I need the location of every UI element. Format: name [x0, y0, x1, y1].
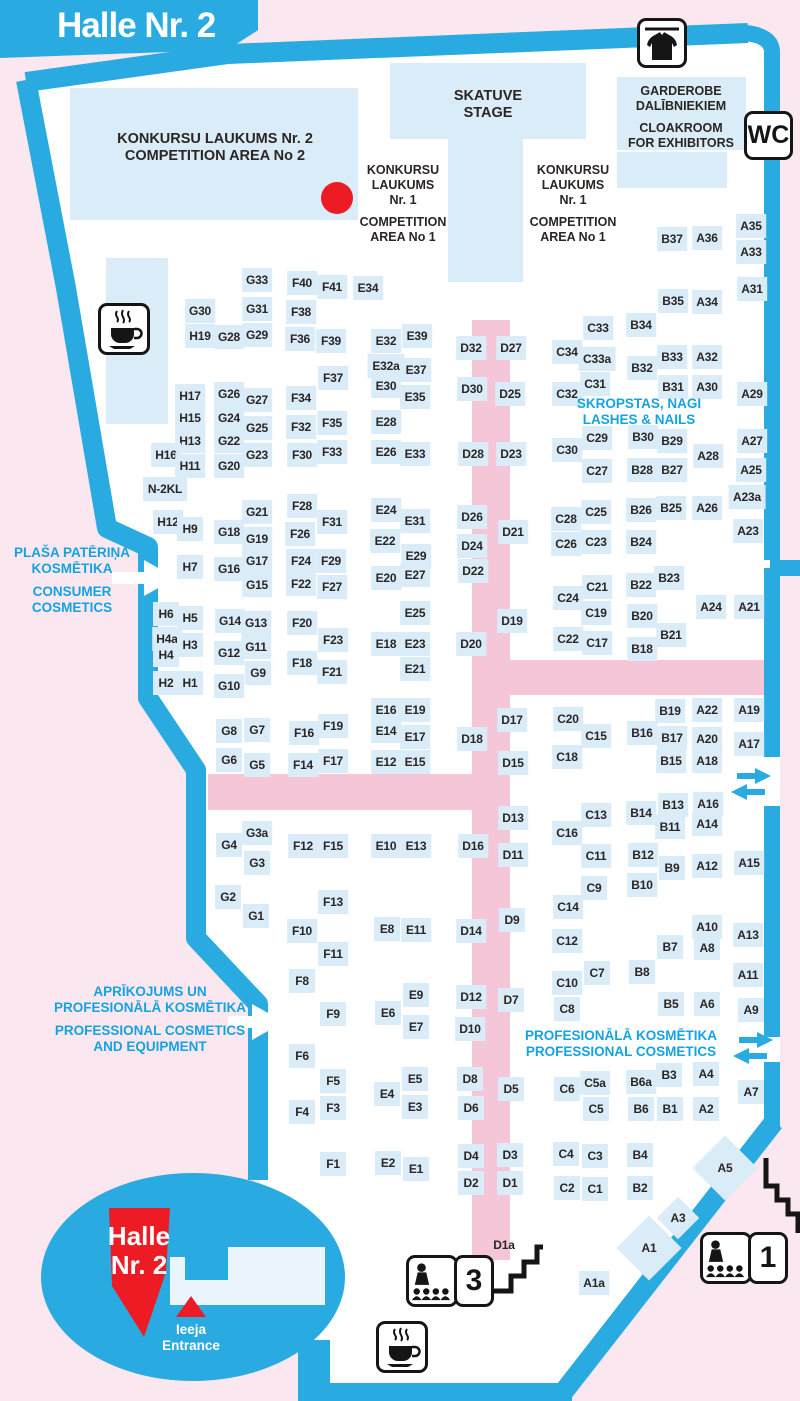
booth-label: E19 [405, 703, 426, 717]
booth-label: C30 [556, 443, 577, 457]
booth-label: E39 [407, 329, 428, 343]
booth-label: D17 [501, 713, 522, 727]
booth-b12: B12 [628, 843, 658, 867]
booth-label: E35 [405, 390, 426, 404]
garderobe-line: DALĪBNIEKIEM [628, 99, 734, 114]
booth-b4: B4 [627, 1143, 653, 1167]
booth-d10: D10 [455, 1017, 485, 1041]
booth-e12: E12 [371, 750, 401, 774]
competition-area-1-left-line: Nr. 1 [360, 193, 447, 208]
competition-area-1-left-line: AREA No 1 [360, 230, 447, 245]
booth-e5: E5 [402, 1067, 428, 1091]
booth-label: E32 [376, 334, 397, 348]
zone-consumer-cosmetics-line: CONSUMER [14, 584, 130, 600]
booth-a21: A21 [734, 595, 764, 619]
booth-label: B4 [633, 1148, 648, 1162]
zone-consumer-cosmetics-line: PLAŠA PATĒRIŅA [14, 545, 130, 561]
entrance-label: IeejaEntrance [162, 1322, 220, 1354]
booth-label: F29 [321, 554, 341, 568]
booth-label: A12 [696, 859, 717, 873]
booth-c31: C31 [580, 372, 610, 396]
booth-label: F19 [323, 719, 343, 733]
lecture-audience-icon [700, 1232, 752, 1284]
booth-label: B32 [631, 361, 652, 375]
booth-label: E28 [376, 415, 397, 429]
booth-label: G1 [248, 909, 264, 923]
booth-label: C33a [583, 352, 611, 366]
booth-label: H3 [183, 638, 198, 652]
booth-label: F12 [293, 839, 313, 853]
booth-label: D23 [500, 447, 521, 461]
booth-a15: A15 [734, 851, 764, 875]
booth-e34: E34 [353, 276, 383, 300]
booth-b18: B18 [627, 637, 657, 661]
booth-h9: H9 [177, 517, 203, 541]
booth-h4: H4 [153, 643, 179, 667]
lecture-room-3-number: 3 [454, 1255, 494, 1307]
garderobe-line: CLOAKROOM [628, 121, 734, 136]
booth-e3: E3 [402, 1095, 428, 1119]
booth-f1: F1 [320, 1152, 346, 1176]
garderobe-block-2 [617, 152, 727, 188]
booth-label: G8 [221, 724, 237, 738]
booth-label: B28 [631, 463, 652, 477]
garderobe-line: FOR EXHIBITORS [628, 136, 734, 151]
zone-lashes-nails-line: SKROPSTAS, NAGI [577, 396, 701, 412]
booth-f35: F35 [317, 411, 347, 435]
booth-label: D24 [461, 539, 482, 553]
booth-c16: C16 [552, 821, 582, 845]
booth-label: A8 [700, 941, 715, 955]
hall-floor-plan: Halle Nr. 2 G33F40F41E34G30G31F38H19G28G… [0, 0, 800, 1401]
booth-f16: F16 [289, 721, 319, 745]
booth-label: D22 [462, 564, 483, 578]
booth-label: B35 [662, 294, 683, 308]
booth-label: F22 [291, 577, 311, 591]
booth-label: C27 [586, 464, 607, 478]
booth-label: E13 [406, 839, 427, 853]
booth-label: G15 [246, 578, 268, 592]
coat-glyph [640, 21, 684, 65]
booth-label: A4 [699, 1067, 714, 1081]
booth-label: A36 [696, 231, 717, 245]
booth-a18: A18 [692, 749, 722, 773]
booth-g13: G13 [241, 611, 271, 635]
booth-label: E3 [408, 1100, 422, 1114]
booth-label: A25 [740, 463, 761, 477]
booth-e28: E28 [371, 410, 401, 434]
booth-label: E15 [405, 755, 426, 769]
booth-h7: H7 [177, 555, 203, 579]
booth-label: D28 [462, 447, 483, 461]
booth-d12: D12 [456, 985, 486, 1009]
booth-label: H12 [157, 515, 178, 529]
booth-label: F3 [326, 1101, 340, 1115]
booth-label: E9 [409, 988, 423, 1002]
booth-a13: A13 [733, 923, 763, 947]
booth-label: G31 [246, 302, 268, 316]
booth-d21: D21 [498, 520, 528, 544]
booth-g11: G11 [241, 635, 271, 659]
booth-f31: F31 [317, 510, 347, 534]
booth-g25: G25 [242, 416, 272, 440]
booth-c9: C9 [581, 876, 607, 900]
competition-area-1-right-line: AREA No 1 [530, 230, 617, 245]
booth-h1: H1 [177, 671, 203, 695]
booth-d25: D25 [495, 382, 525, 406]
booth-e24: E24 [371, 498, 401, 522]
booth-g1: G1 [243, 904, 269, 928]
booth-g18: G18 [214, 520, 244, 544]
booth-label: E4 [380, 1087, 394, 1101]
booth-a32: A32 [692, 345, 722, 369]
booth-label: A15 [738, 856, 759, 870]
booth-label: G22 [218, 434, 240, 448]
booth-d13: D13 [498, 806, 528, 830]
stage-label: SKATUVESTAGE [454, 88, 522, 122]
booth-d17: D17 [497, 708, 527, 732]
booth-label: D13 [502, 811, 523, 825]
stage-block-stem [448, 139, 523, 282]
aisle-horizontal-right [472, 660, 765, 695]
zone-professional-cosmetics-line: PROFESSIONAL COSMETICS [525, 1044, 717, 1060]
booth-a31: A31 [737, 277, 767, 301]
booth-a4: A4 [693, 1062, 719, 1086]
booth-label: G6 [221, 753, 237, 767]
booth-g26: G26 [214, 382, 244, 406]
booth-label: E23 [405, 637, 426, 651]
booth-label: A9 [744, 1003, 759, 1017]
booth-e7: E7 [403, 1015, 429, 1039]
booth-label: C26 [555, 537, 576, 551]
booth-g22: G22 [214, 429, 244, 453]
booth-f19: F19 [318, 714, 348, 738]
booth-f40: F40 [287, 271, 317, 295]
booth-label: E29 [406, 549, 427, 563]
booth-b16: B16 [627, 721, 657, 745]
booth-f30: F30 [287, 443, 317, 467]
booth-label: D4 [464, 1149, 479, 1163]
booth-label: E22 [375, 534, 396, 548]
booth-label: G23 [246, 448, 268, 462]
booth-e18: E18 [371, 632, 401, 656]
booth-c4: C4 [553, 1142, 579, 1166]
booth-label: E32a [372, 359, 399, 373]
booth-label: H7 [183, 560, 198, 574]
booth-d30: D30 [457, 377, 487, 401]
booth-label: G20 [218, 459, 240, 473]
booth-label: A11 [738, 968, 759, 982]
booth-label: G12 [218, 646, 240, 660]
wc-sign: WC [744, 111, 793, 160]
booth-label: E7 [409, 1020, 423, 1034]
booth-label: D15 [502, 756, 523, 770]
booth-d24: D24 [457, 534, 487, 558]
booth-label: H15 [179, 411, 200, 425]
booth-label: C15 [585, 729, 606, 743]
booth-b29: B29 [657, 429, 687, 453]
booth-g28: G28 [214, 325, 244, 349]
competition-area-2-line: COMPETITION AREA No 2 [117, 148, 313, 165]
booth-label: E2 [381, 1156, 395, 1170]
booth-label: C19 [585, 606, 606, 620]
booth-label: A28 [697, 449, 718, 463]
booth-f11: F11 [318, 942, 348, 966]
booth-label: H2 [159, 676, 174, 690]
booth-label: F41 [322, 280, 342, 294]
booth-a12: A12 [692, 854, 722, 878]
booth-label: B11 [660, 820, 681, 834]
booth-d8: D8 [457, 1067, 483, 1091]
booth-b5: B5 [658, 992, 684, 1016]
booth-label: A24 [700, 600, 721, 614]
booth-f39: F39 [316, 329, 346, 353]
booth-label: E33 [405, 447, 426, 461]
booth-d20: D20 [456, 632, 486, 656]
booth-label: B7 [663, 940, 678, 954]
booth-d7: D7 [498, 988, 524, 1012]
booth-label: C21 [586, 580, 607, 594]
booth-label: G25 [246, 421, 268, 435]
booth-label: E27 [405, 568, 426, 582]
booth-e19: E19 [400, 698, 430, 722]
booth-e2: E2 [375, 1151, 401, 1175]
booth-e22: E22 [370, 529, 400, 553]
coffee-glyph [102, 307, 146, 351]
booth-label: A1a [583, 1276, 604, 1290]
competition-area-1-right-line: LAUKUMS [530, 178, 617, 193]
booth-label: G4 [221, 838, 237, 852]
booth-label: F30 [292, 448, 312, 462]
booth-label: H5 [183, 611, 198, 625]
booth-a1: A1 [626, 1225, 672, 1271]
booth-label: C4 [559, 1147, 574, 1161]
booth-e6: E6 [375, 1001, 401, 1025]
booth-a29: A29 [737, 382, 767, 406]
booth-h6: H6 [153, 602, 179, 626]
booth-a34: A34 [692, 290, 722, 314]
zone-professional-cosmetics-line: PROFESIONĀLĀ KOSMĒTIKA [525, 1028, 717, 1044]
booth-label: A26 [696, 501, 717, 515]
booth-label: C18 [556, 750, 577, 764]
booth-label: B24 [630, 535, 651, 549]
booth-label: B30 [632, 430, 653, 444]
booth-label: A16 [697, 797, 718, 811]
booth-label: F18 [292, 656, 312, 670]
booth-label: A31 [741, 282, 762, 296]
booth-label: A14 [696, 817, 717, 831]
booth-e14: E14 [371, 719, 401, 743]
booth-d2: D2 [458, 1171, 484, 1195]
booth-f38: F38 [286, 300, 316, 324]
zone-consumer-cosmetics-label: PLAŠA PATĒRIŅAKOSMĒTIKACONSUMERCOSMETICS [14, 545, 130, 616]
booth-f15: F15 [318, 834, 348, 858]
booth-label: C12 [556, 934, 577, 948]
booth-e25: E25 [400, 601, 430, 625]
booth-label: G5 [249, 758, 265, 772]
booth-b13: B13 [658, 793, 688, 817]
booth-label: B10 [631, 878, 652, 892]
zone-professional-equipment-line: APRĪKOJUMS UN [54, 984, 246, 1000]
booth-e26: E26 [371, 440, 401, 464]
booth-label: B2 [633, 1181, 648, 1195]
booth-c5: C5 [583, 1097, 609, 1121]
booth-label: A20 [696, 732, 717, 746]
booth-label: E30 [376, 379, 397, 393]
booth-label: A21 [738, 600, 759, 614]
booth-label: E18 [376, 637, 397, 651]
booth-label: C14 [557, 900, 578, 914]
booth-f13: F13 [318, 890, 348, 914]
booth-label: C17 [586, 636, 607, 650]
booth-label: A23 [737, 524, 758, 538]
booth-b37: B37 [657, 227, 687, 251]
booth-g33: G33 [242, 268, 272, 292]
booth-e15: E15 [400, 750, 430, 774]
booth-d32: D32 [456, 336, 486, 360]
booth-d16: D16 [458, 834, 488, 858]
booth-label: H11 [180, 459, 201, 473]
booth-label: B25 [660, 501, 681, 515]
booth-a35: A35 [736, 214, 766, 238]
garderobe-line: GARDEROBE [628, 84, 734, 99]
booth-e10: E10 [371, 834, 401, 858]
zone-professional-equipment-line: PROFESIONĀLĀ KOSMĒTIKA [54, 1000, 246, 1016]
booth-g15: G15 [242, 573, 272, 597]
booth-f34: F34 [286, 386, 316, 410]
booth-label: H19 [189, 329, 210, 343]
competition-area-1-left-line: KONKURSU [360, 163, 447, 178]
competition-area-1-right-label: KONKURSULAUKUMSNr. 1COMPETITIONAREA No 1 [530, 163, 617, 245]
booth-g27: G27 [242, 388, 272, 412]
booth-label: G30 [189, 304, 211, 318]
booth-c6: C6 [554, 1077, 580, 1101]
booth-label: C29 [586, 431, 607, 445]
booth-label: E11 [406, 923, 426, 937]
booth-label: C16 [556, 826, 577, 840]
booth-f24: F24 [286, 549, 316, 573]
booth-label: D2 [464, 1176, 479, 1190]
booth-g3: G3 [244, 851, 270, 875]
zone-consumer-cosmetics-line: COSMETICS [14, 600, 130, 616]
booth-b34: B34 [626, 313, 656, 337]
booth-label: F13 [323, 895, 343, 909]
booth-b6a: B6a [626, 1070, 656, 1094]
booth-d23: D23 [496, 442, 526, 466]
booth-c30: C30 [552, 438, 582, 462]
booth-b10: B10 [627, 873, 657, 897]
booth-c13: C13 [581, 803, 611, 827]
booth-g10: G10 [214, 674, 244, 698]
booth-label: A19 [738, 703, 759, 717]
booth-label: F11 [323, 947, 342, 961]
booth-label: C9 [587, 881, 602, 895]
booth-d1a: D1a [489, 1233, 519, 1257]
booth-label: C28 [555, 512, 576, 526]
booth-label: B12 [632, 848, 653, 862]
booth-g12: G12 [214, 641, 244, 665]
booth-a20: A20 [692, 727, 722, 751]
booth-label: C33 [587, 321, 608, 335]
booth-label: C31 [584, 377, 605, 391]
booth-label: E17 [405, 730, 426, 744]
booth-label: C5a [584, 1076, 605, 1090]
booth-c33: C33 [583, 316, 613, 340]
booth-b27: B27 [657, 458, 687, 482]
booth-label: G17 [246, 554, 268, 568]
booth-c5a: C5a [580, 1071, 610, 1095]
booth-f4: F4 [289, 1100, 315, 1124]
booth-label: F14 [293, 758, 313, 772]
competition-area-1-right-line: Nr. 1 [530, 193, 617, 208]
booth-c11: C11 [581, 844, 611, 868]
booth-label: B14 [630, 806, 651, 820]
booth-f5: F5 [320, 1069, 346, 1093]
booth-label: D26 [461, 510, 482, 524]
page-title: Halle Nr. 2 [57, 6, 215, 46]
booth-label: F10 [292, 924, 312, 938]
booth-d15: D15 [498, 751, 528, 775]
booth-label: H17 [179, 389, 200, 403]
booth-label: D14 [460, 924, 481, 938]
booth-label: D7 [504, 993, 519, 1007]
booth-label: A27 [741, 434, 762, 448]
booth-label: D30 [461, 382, 482, 396]
booth-e23: E23 [400, 632, 430, 656]
booth-label: D8 [463, 1072, 478, 1086]
booth-label: E24 [376, 503, 397, 517]
booth-f41: F41 [317, 275, 347, 299]
booth-label: B23 [658, 571, 679, 585]
booth-label: F40 [292, 276, 312, 290]
booth-d14: D14 [456, 919, 486, 943]
booth-label: D19 [501, 614, 522, 628]
booth-c33a: C33a [579, 347, 616, 371]
booth-label: H9 [183, 522, 198, 536]
booth-h3: H3 [177, 633, 203, 657]
booth-label: E14 [376, 724, 397, 738]
booth-g30: G30 [185, 299, 215, 323]
booth-label: C10 [556, 976, 577, 990]
booth-b6: B6 [628, 1097, 654, 1121]
booth-label: C8 [560, 1002, 575, 1016]
booth-label: B6a [630, 1075, 651, 1089]
booth-a5: A5 [702, 1145, 748, 1191]
booth-f20: F20 [287, 611, 317, 635]
booth-b22: B22 [626, 573, 656, 597]
booth-g6: G6 [216, 748, 242, 772]
hall-badge-line: Halle [108, 1222, 170, 1251]
booth-label: F15 [323, 839, 343, 853]
booth-d27: D27 [496, 336, 526, 360]
booth-label: N-2KL [148, 482, 182, 496]
booth-label: C25 [585, 505, 606, 519]
booth-label: C7 [590, 966, 605, 980]
booth-e33: E33 [400, 442, 430, 466]
booth-a8: A8 [694, 936, 720, 960]
coffee-icon-bottom [376, 1321, 428, 1373]
booth-label: G11 [245, 640, 266, 654]
booth-c23: C23 [581, 530, 611, 554]
booth-label: B3 [662, 1068, 677, 1082]
booth-b15: B15 [656, 749, 686, 773]
booth-g21: G21 [242, 500, 272, 524]
zone-professional-cosmetics-label: PROFESIONĀLĀ KOSMĒTIKAPROFESSIONAL COSME… [525, 1028, 717, 1060]
booth-label: B37 [661, 232, 682, 246]
booth-b24: B24 [626, 530, 656, 554]
booth-label: F35 [322, 416, 342, 430]
booth-f17: F17 [318, 749, 348, 773]
